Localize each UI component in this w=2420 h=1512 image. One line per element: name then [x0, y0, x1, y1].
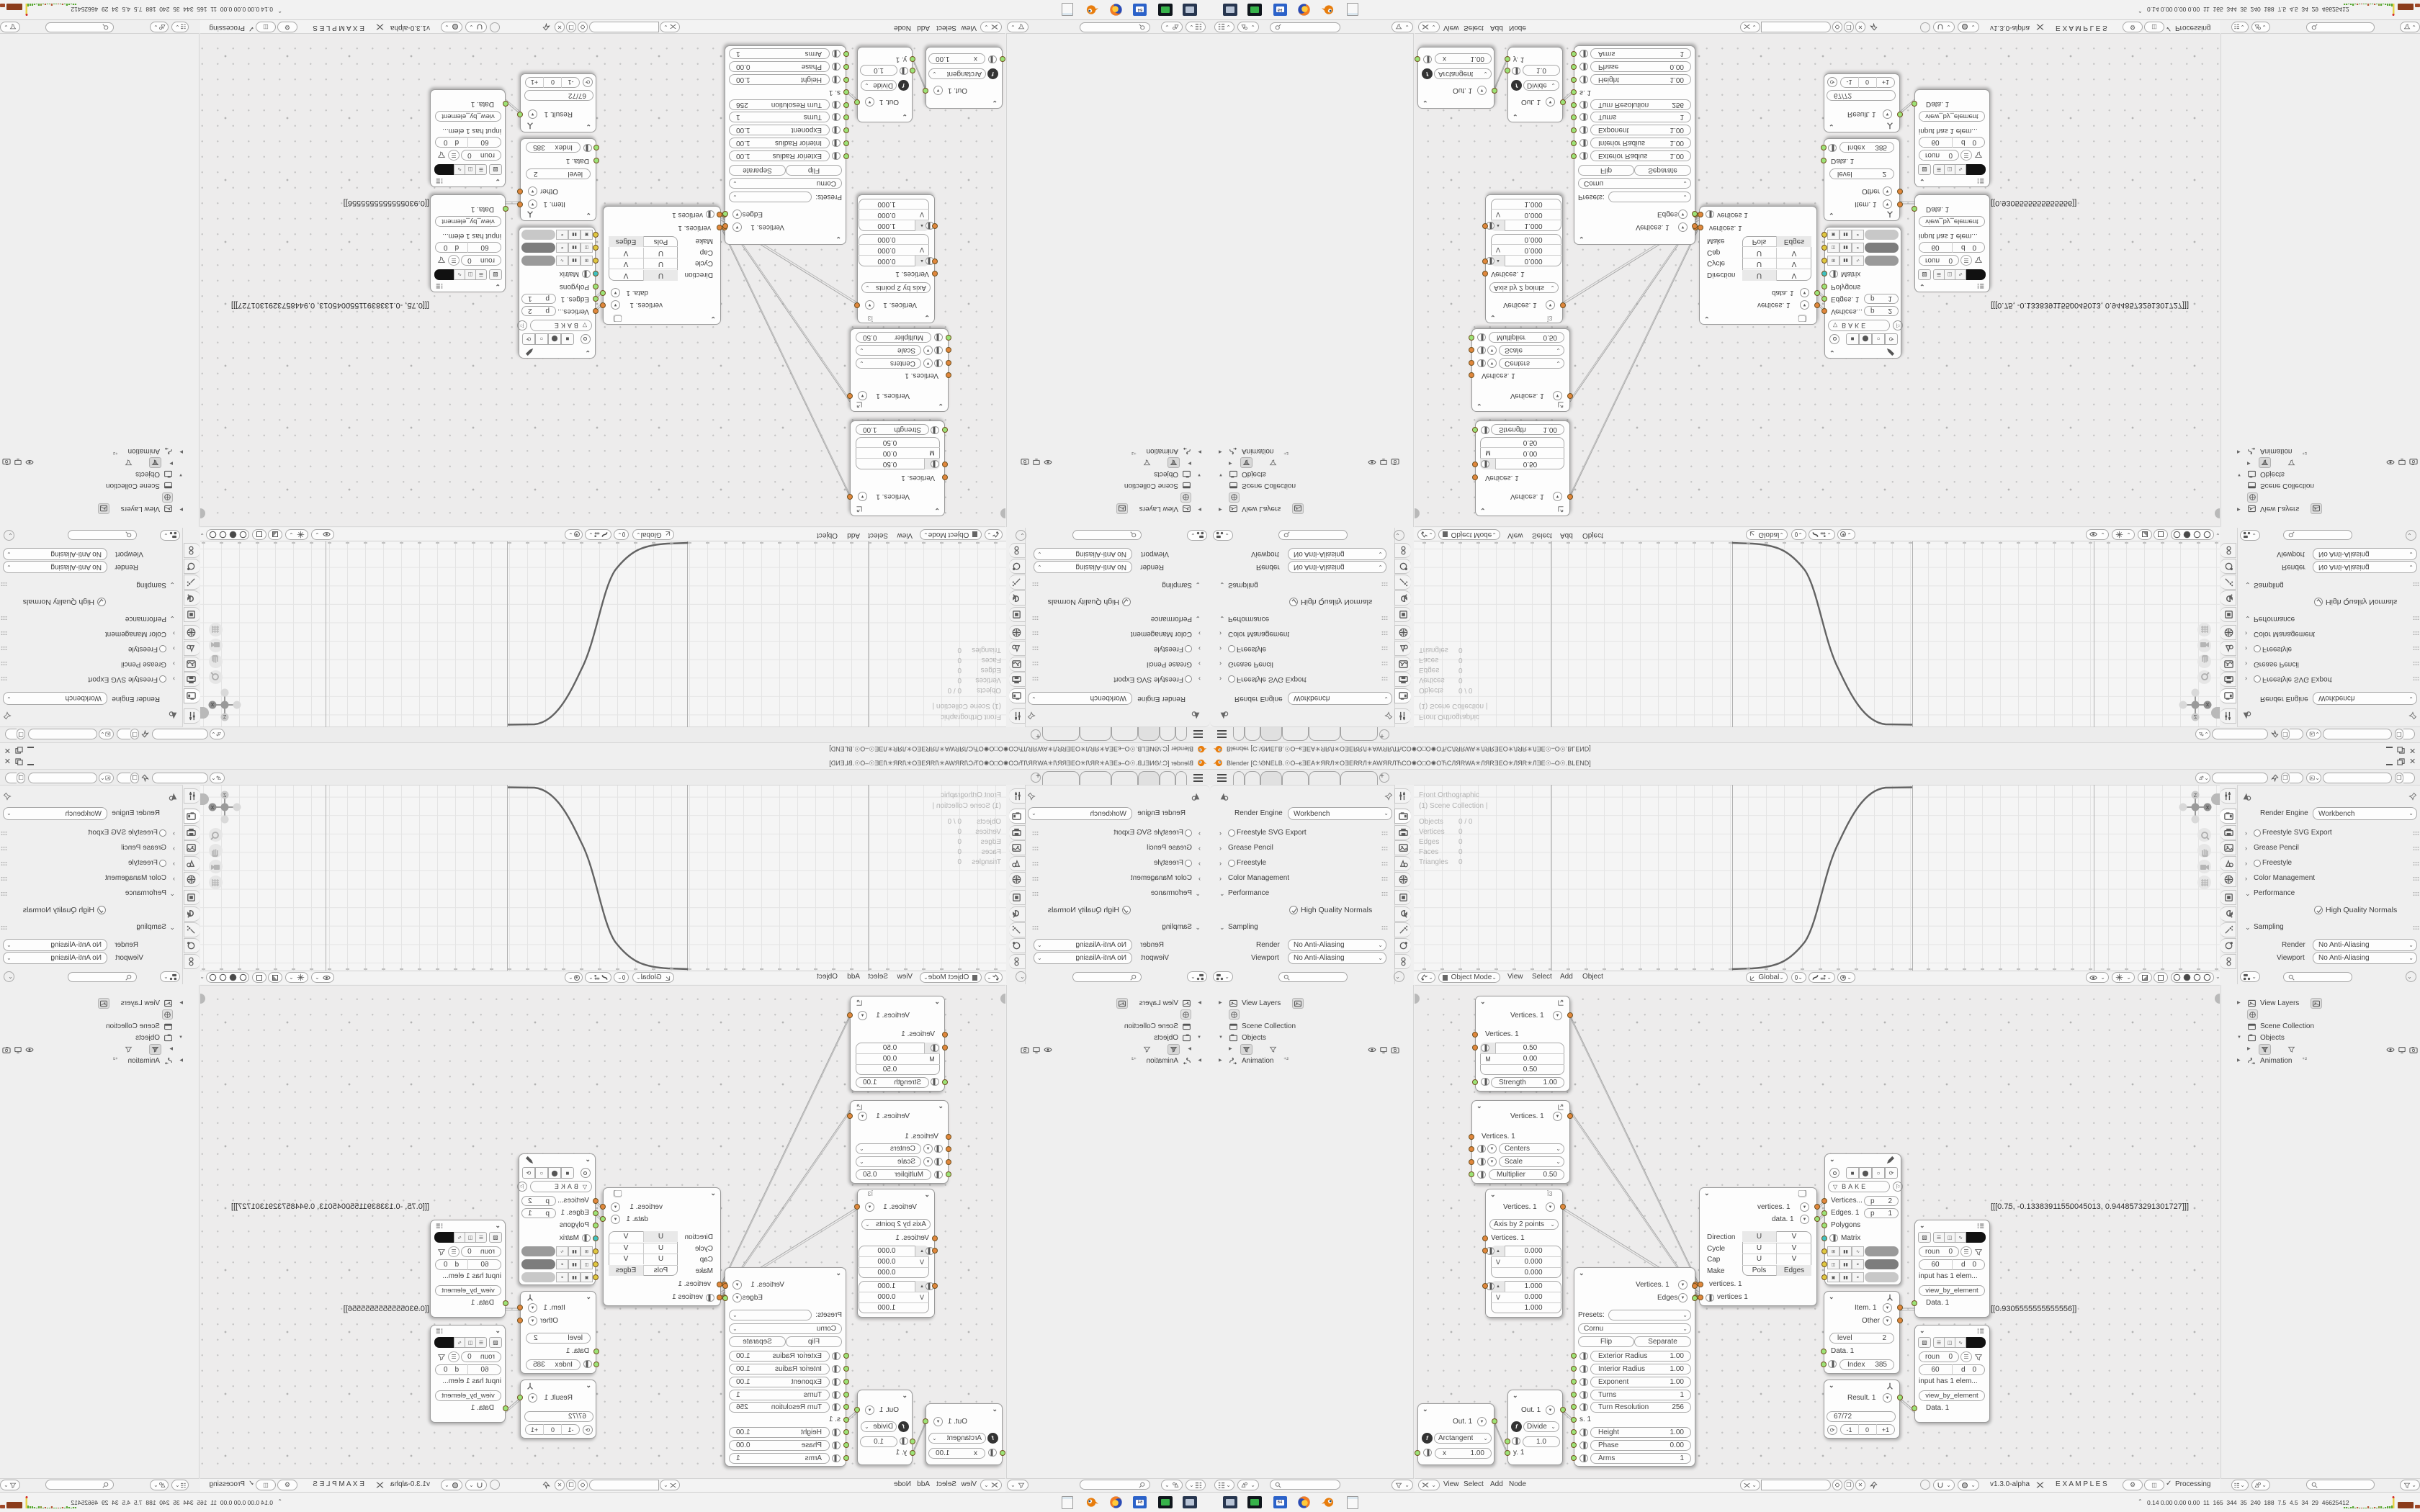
svg-text:X: X	[2206, 701, 2210, 706]
svg-text:Z: Z	[223, 714, 226, 719]
svg-text:Z: Z	[2194, 793, 2197, 798]
svg-text:X: X	[210, 701, 214, 706]
svg-text:Z: Z	[223, 793, 226, 798]
svg-text:X: X	[210, 806, 214, 811]
svg-text:X: X	[2206, 806, 2210, 811]
svg-text:Z: Z	[2194, 714, 2197, 719]
